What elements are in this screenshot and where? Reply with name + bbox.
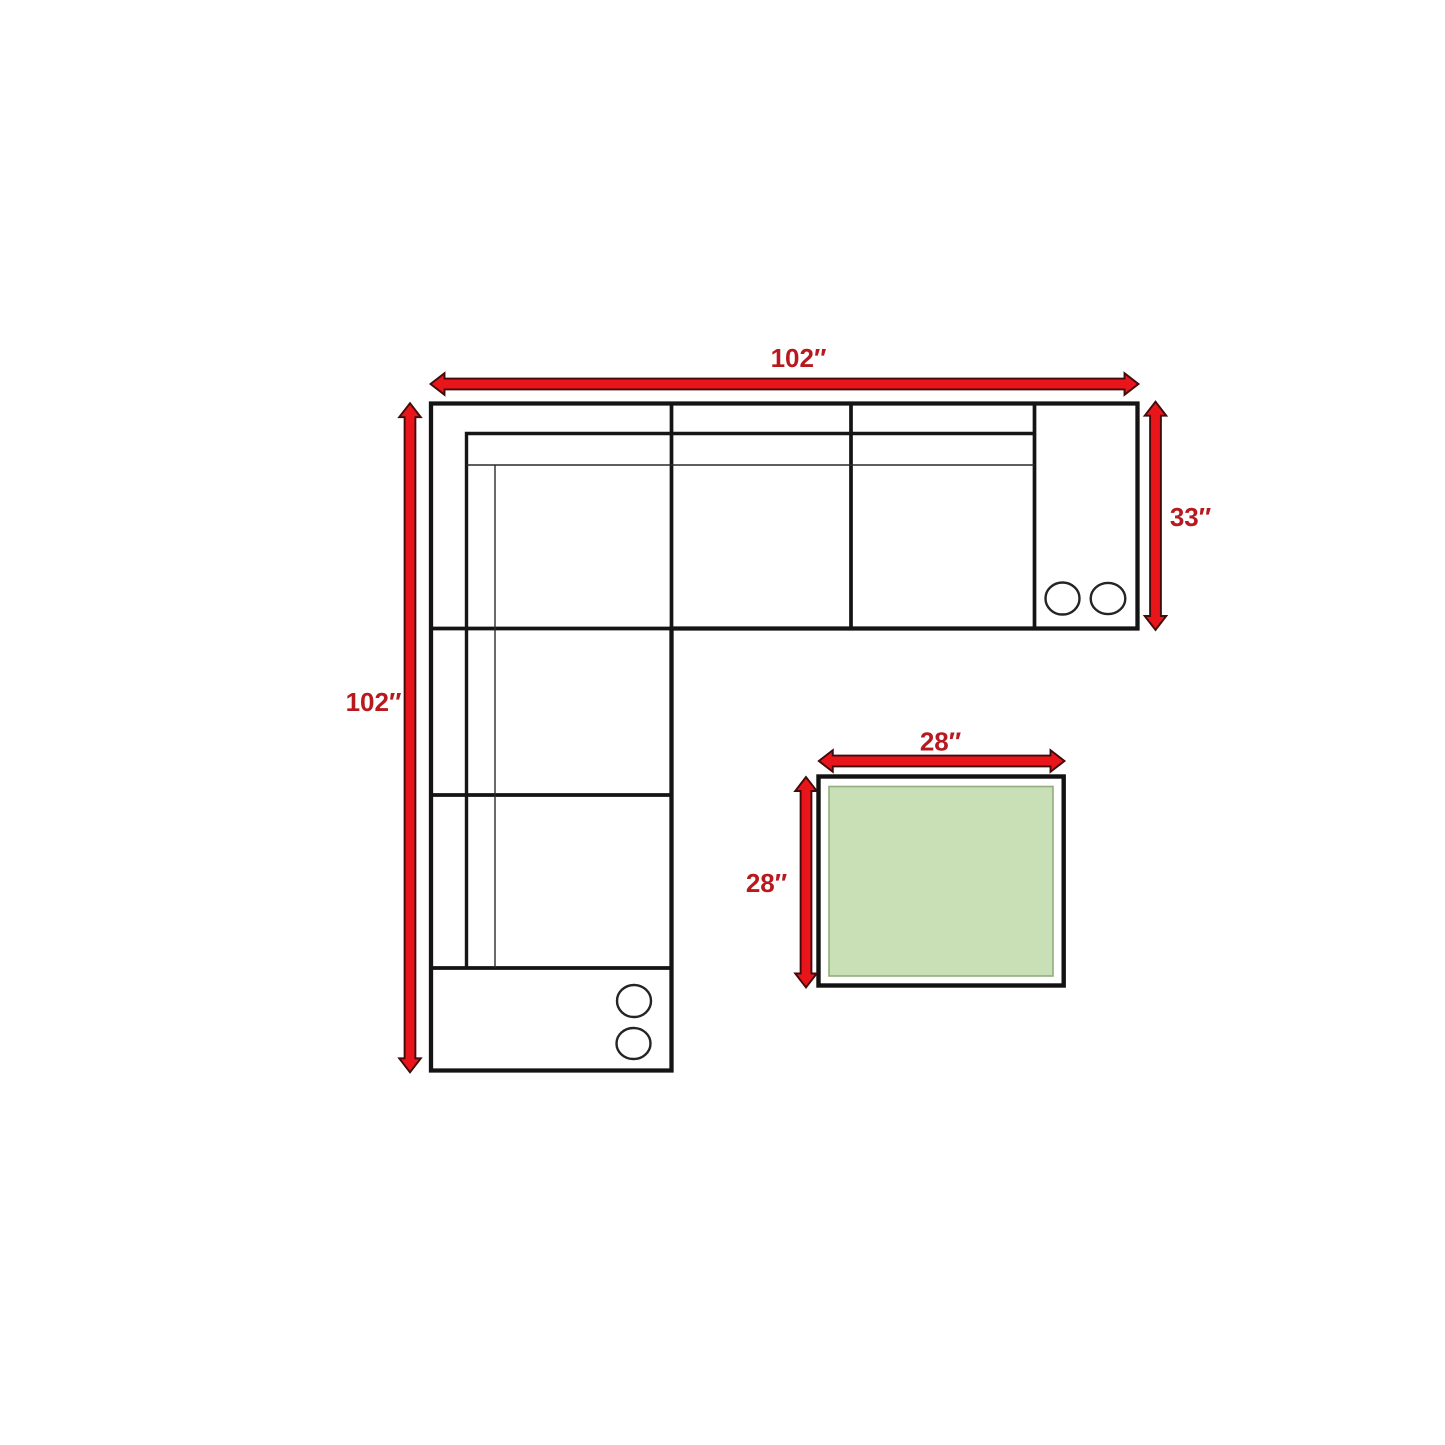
svg-text:28″: 28″ — [746, 868, 787, 898]
svg-text:33″: 33″ — [1170, 502, 1211, 532]
svg-text:102″: 102″ — [346, 687, 402, 717]
svg-text:28″: 28″ — [920, 727, 961, 757]
svg-text:102″: 102″ — [771, 343, 827, 373]
